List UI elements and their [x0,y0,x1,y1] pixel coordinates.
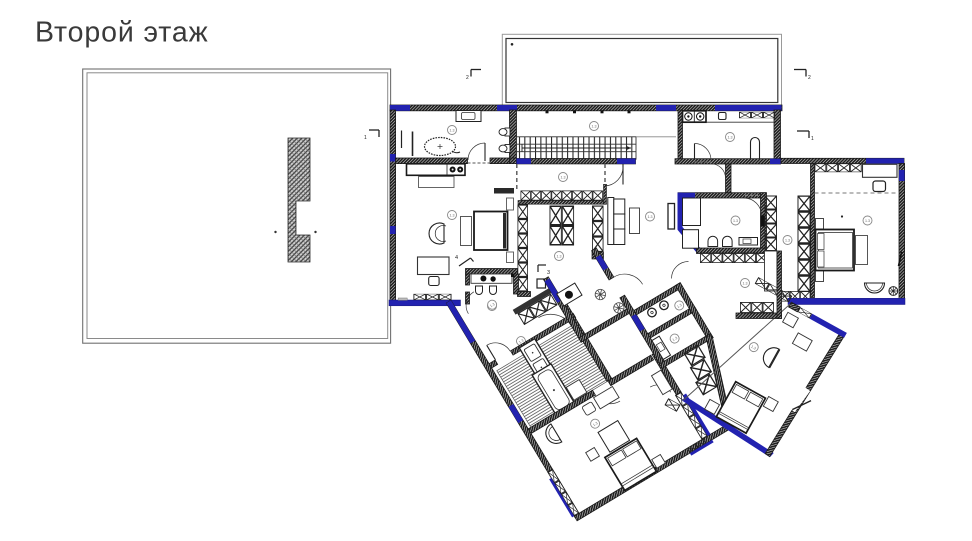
svg-text:2: 2 [466,75,469,81]
svg-text:4: 4 [455,255,458,261]
svg-text:Второй этаж: Второй этаж [35,17,209,49]
svg-text:3: 3 [547,270,550,276]
svg-text:2: 2 [808,75,811,81]
svg-text:1: 1 [811,136,814,142]
svg-text:1: 1 [364,135,367,141]
